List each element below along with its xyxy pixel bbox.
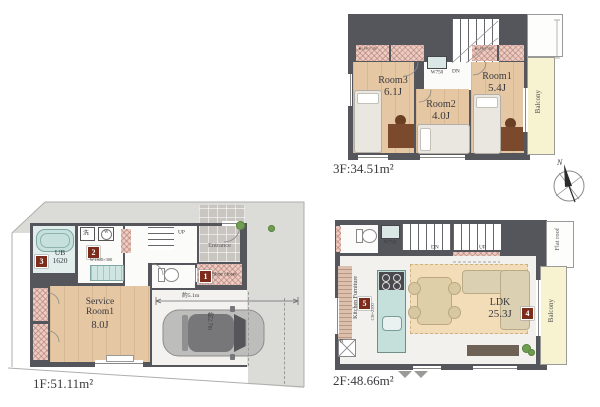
3f-room2-pillow xyxy=(420,128,431,151)
2f-flat-roof: Flat roof xyxy=(546,221,574,268)
2f-flat-roof-label: Flat roof xyxy=(555,228,562,251)
stove-burner xyxy=(393,282,401,290)
1f-toilet-bowl xyxy=(164,268,179,282)
2f-area-label: 2F:48.66m² xyxy=(333,374,394,388)
1f-garage-width-dim: 約5.1m xyxy=(182,293,199,299)
2f-window-left xyxy=(335,298,339,334)
1f-window-tag xyxy=(106,355,134,362)
2f-dining-chair xyxy=(408,282,421,295)
1f-stairs xyxy=(148,226,174,252)
1f-garage-depth-dim: 約2.7m xyxy=(206,312,212,330)
1f-stair-up-label: UP xyxy=(178,230,185,236)
1f-garage-boundary-dashed xyxy=(248,292,249,366)
3f-room1-pillow xyxy=(476,97,498,108)
3f-room2-name: Room2 xyxy=(418,100,464,111)
1f-closet-left-upper xyxy=(33,288,48,321)
2f-kitchen-dim: CH=2500 xyxy=(371,303,376,320)
2f-dining-chair xyxy=(448,306,461,319)
bathtub-inner xyxy=(40,233,70,248)
2f-plant xyxy=(528,349,535,356)
1f-vanity-counter xyxy=(90,265,124,281)
3f-stair-dn-label: DN xyxy=(452,69,460,75)
2f-balcony-label: Balcony xyxy=(548,299,555,322)
1f-washer-glyph: W xyxy=(104,230,109,235)
1f-understair-storage xyxy=(121,229,131,253)
3f-room3-label: Room3 6.1J xyxy=(370,76,416,98)
3f-room2-label: Room2 4.0J xyxy=(418,100,464,122)
2f-ldk-label: LDK 25.3J xyxy=(480,298,520,320)
1f-service-room-label: Service Room1 8.0J xyxy=(65,298,135,331)
3f-closet-w750 xyxy=(427,56,447,69)
3f-room2-bed xyxy=(417,124,470,154)
2f-ldk-name: LDK xyxy=(480,298,520,309)
1f-plant xyxy=(268,225,275,232)
2f-ldk-size: 25.3J xyxy=(480,309,520,321)
compass: N xyxy=(545,155,591,207)
floorplan-image: Balcony W750 DN ▲CH=1.3m ▲CH=1.3m Room3 xyxy=(0,0,600,407)
3f-room3-desk xyxy=(388,124,414,148)
3f-room3-bed xyxy=(354,90,382,153)
3f-area-label: 3F:34.51m² xyxy=(333,162,394,176)
1f-vanity-dim: W1300×300 xyxy=(85,258,118,263)
3f-closet-note-right: ▲CH=1.3m xyxy=(474,47,492,51)
2f-window-swing-mark xyxy=(398,371,412,378)
2f-dining-chair xyxy=(448,282,461,295)
2f-closet-w750 xyxy=(381,225,400,239)
3f-closet-note-left: ▲CH=1.3m xyxy=(358,47,376,51)
2f-balcony-door-gap xyxy=(536,280,541,336)
badge-5: 5 xyxy=(358,297,371,310)
1f-washing-machine: W xyxy=(98,227,114,241)
3f-roof-box xyxy=(527,14,563,57)
badge-1: 1 xyxy=(199,270,212,283)
2f-closet-w750-label: W750 xyxy=(380,240,400,245)
1f-bath-label: UB 1620 xyxy=(45,249,75,265)
2f-window-swing-mark xyxy=(414,371,428,378)
3f-room3-name: Room3 xyxy=(370,76,416,87)
1f-shoe-closet-label: Shoe closet xyxy=(212,272,237,278)
3f-window-bottom-left xyxy=(358,155,388,160)
1f-closet-left-lower xyxy=(33,324,48,360)
2f-balcony: Balcony xyxy=(540,266,567,365)
3f-room3-size: 6.1J xyxy=(370,87,416,99)
3f-closet-w750-label: W750 xyxy=(426,70,448,75)
3f-room1-bed xyxy=(473,94,501,154)
1f-service-room-name2: Room1 xyxy=(65,308,135,318)
3f-closet-divider-left xyxy=(389,45,391,61)
1f-area-label: 1F:51.11m² xyxy=(33,377,93,391)
1f-washbasin-glyph: 洗 xyxy=(83,230,89,236)
2f-kitchen-sink xyxy=(382,316,402,331)
3f-window-bottom-center xyxy=(420,155,465,160)
2f-window-bottom-right xyxy=(473,366,517,371)
stove-burner xyxy=(382,274,390,282)
1f-bath-size: 1620 xyxy=(45,257,75,265)
stove-burner xyxy=(382,282,390,290)
3f-closet-divider-right xyxy=(497,45,499,61)
compass-north-label: N xyxy=(556,158,563,167)
car xyxy=(160,305,268,361)
1f-entrance-label: Entrance xyxy=(199,243,240,250)
2f-stair-up-label: UP xyxy=(479,245,486,251)
2f-stove xyxy=(379,272,404,290)
badge-3: 3 xyxy=(35,255,48,268)
2f-dining-table xyxy=(417,277,452,325)
3f-room2-size: 4.0J xyxy=(418,111,464,123)
compass-needle xyxy=(564,164,572,187)
2f-stair-dn-label: DN xyxy=(431,245,439,251)
stove-burner xyxy=(393,274,401,282)
2f-kitchen-furniture xyxy=(338,266,352,346)
3f-room1-size: 5.4J xyxy=(474,83,520,95)
1f-washbasin: 洗 xyxy=(80,227,95,241)
2f-toilet-side-closet xyxy=(336,226,341,252)
3f-balcony-door-gap xyxy=(523,88,528,132)
2f-stairs-down xyxy=(402,224,451,250)
3f-room1-desk xyxy=(501,127,524,151)
3f-balcony: Balcony xyxy=(527,57,555,155)
badge-4: 4 xyxy=(521,307,534,320)
1f-service-room-size: 8.0J xyxy=(65,320,135,331)
2f-toilet-bowl xyxy=(362,229,377,243)
2f-fridge-label: R xyxy=(340,339,343,344)
3f-balcony-label: Balcony xyxy=(535,90,542,113)
2f-dining-chair xyxy=(408,306,421,319)
3f-window-left xyxy=(348,74,352,106)
1f-plant xyxy=(236,221,245,230)
1f-parking-boundary-dashed xyxy=(284,298,285,384)
1f-corridor xyxy=(148,250,197,263)
2f-stairs-up xyxy=(453,224,501,250)
2f-tv-board xyxy=(467,345,519,356)
3f-room1-name: Room1 xyxy=(474,72,520,83)
3f-room1-label: Room1 5.4J xyxy=(474,72,520,94)
2f-sofa-top xyxy=(462,270,504,294)
